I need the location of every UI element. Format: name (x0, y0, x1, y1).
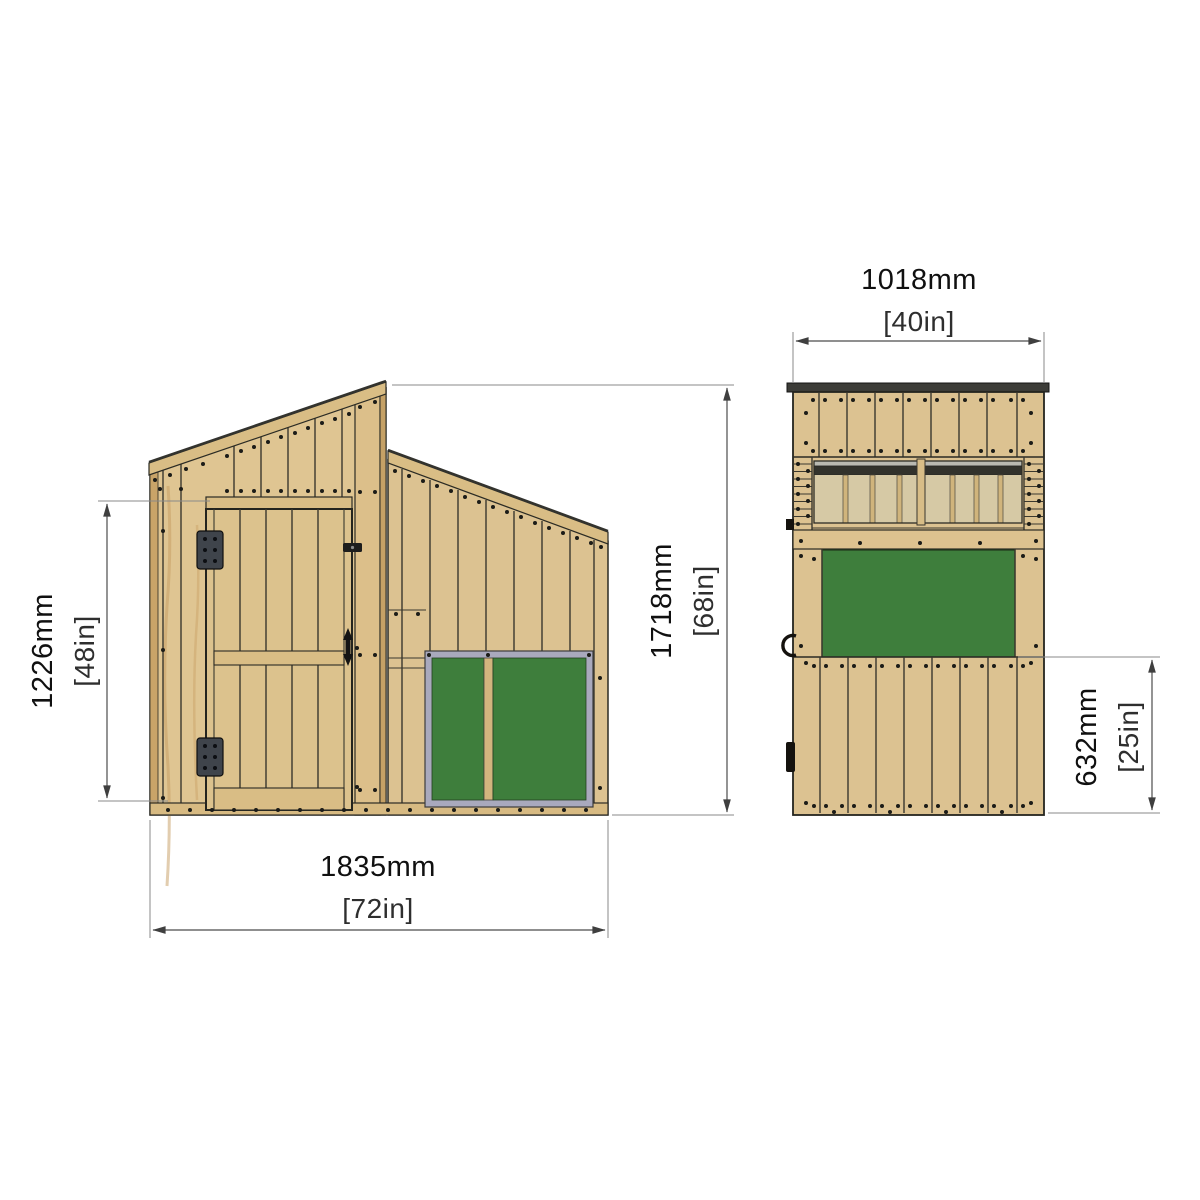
screw-dot (342, 808, 346, 812)
screw-dot (1009, 804, 1013, 808)
screw-dot (991, 449, 995, 453)
screw-dot (880, 664, 884, 668)
screw-dot (979, 449, 983, 453)
screw-dot (840, 804, 844, 808)
screw-dot (225, 454, 229, 458)
screw-dot (166, 808, 170, 812)
screw-dot (239, 489, 243, 493)
edge-hinge-bottom-icon (786, 742, 795, 772)
screw-dot (1009, 398, 1013, 402)
screw-dot (364, 808, 368, 812)
screw-dot (908, 804, 912, 808)
screw-dot (474, 808, 478, 812)
screw-dot (210, 808, 214, 812)
screw-dot (824, 804, 828, 808)
screw-dot (867, 398, 871, 402)
screw-dot (252, 445, 256, 449)
green-board-small (432, 658, 484, 800)
screw-dot (963, 449, 967, 453)
screw-dot (879, 449, 883, 453)
screw-dot (879, 398, 883, 402)
screw-dot (293, 489, 297, 493)
screw-dot (1000, 810, 1004, 814)
screw-dot (1034, 557, 1038, 561)
screw-dot (188, 808, 192, 812)
screw-dot (355, 785, 359, 789)
screw-dot (978, 541, 982, 545)
screw-dot (951, 449, 955, 453)
door-latch-icon (343, 543, 362, 552)
screw-dot (804, 801, 808, 805)
screw-dot (547, 526, 551, 530)
screw-dot (561, 531, 565, 535)
screw-dot (598, 676, 602, 680)
screw-dot (1021, 398, 1025, 402)
screw-dot (386, 808, 390, 812)
screw-dot (980, 664, 984, 668)
screw-dot (575, 536, 579, 540)
screw-dot (1029, 801, 1033, 805)
screw-dot (858, 541, 862, 545)
front-window (812, 459, 1024, 528)
screw-dot (589, 541, 593, 545)
screw-dot (812, 804, 816, 808)
screw-dot (851, 449, 855, 453)
front-mid-rail (793, 530, 1044, 549)
screw-dot (1021, 804, 1025, 808)
screw-dot (839, 398, 843, 402)
screw-dot (562, 808, 566, 812)
dimension-overall-depth: 1835mm [72in] (150, 820, 608, 938)
screw-dot (799, 554, 803, 558)
screw-dot (924, 804, 928, 808)
screw-dot (153, 478, 157, 482)
screw-dot (333, 489, 337, 493)
screw-dot (1027, 492, 1031, 496)
screw-dot (452, 808, 456, 812)
screw-dot (427, 653, 431, 657)
screw-dot (851, 398, 855, 402)
screw-dot (201, 462, 205, 466)
screw-dot (812, 557, 816, 561)
screw-dot (952, 804, 956, 808)
screw-dot (584, 808, 588, 812)
screw-dot (964, 664, 968, 668)
screw-dot (935, 449, 939, 453)
screw-dot (804, 441, 808, 445)
green-board-large (493, 658, 586, 800)
screw-dot (320, 421, 324, 425)
screw-dot (449, 489, 453, 493)
overall-height-in-label: [68in] (688, 565, 719, 637)
screw-dot (935, 398, 939, 402)
front-elevation-view (783, 383, 1049, 815)
side-corner-edge (380, 393, 386, 815)
screw-dot (1027, 477, 1031, 481)
screw-dot (980, 804, 984, 808)
screw-dot (1029, 441, 1033, 445)
screw-dot (796, 507, 800, 511)
green-board-mullion (484, 658, 493, 800)
screw-dot (1009, 664, 1013, 668)
side-elevation-view (149, 381, 608, 886)
screw-dot (279, 435, 283, 439)
screw-dot (435, 484, 439, 488)
screw-dot (867, 449, 871, 453)
door-bottom-rail (214, 788, 344, 810)
screw-dot (1034, 539, 1038, 543)
screw-dot (952, 664, 956, 668)
overall-depth-mm-label: 1835mm (320, 851, 436, 883)
screw-dot (896, 804, 900, 808)
screw-dot (907, 449, 911, 453)
screw-dot (505, 510, 509, 514)
screw-dot (907, 398, 911, 402)
screw-dot (358, 490, 362, 494)
door-hinge-top-icon (197, 531, 223, 569)
screw-dot (806, 469, 810, 473)
screw-dot (306, 489, 310, 493)
screw-dot (852, 664, 856, 668)
screw-dot (373, 653, 377, 657)
front-green-board (822, 550, 1015, 657)
screw-dot (587, 653, 591, 657)
screw-dot (832, 810, 836, 814)
screw-dot (936, 804, 940, 808)
screw-dot (373, 400, 377, 404)
screw-dot (1027, 507, 1031, 511)
screw-dot (799, 644, 803, 648)
screw-dot (496, 808, 500, 812)
screw-dot (347, 412, 351, 416)
screw-dot (320, 489, 324, 493)
screw-dot (991, 398, 995, 402)
screw-dot (298, 808, 302, 812)
screw-dot (806, 499, 810, 503)
screw-dot (824, 664, 828, 668)
screw-dot (416, 612, 420, 616)
screw-dot (806, 514, 810, 518)
screw-dot (804, 411, 808, 415)
screw-dot (279, 489, 283, 493)
screw-dot (852, 804, 856, 808)
screw-dot (239, 449, 243, 453)
screw-dot (804, 661, 808, 665)
screw-dot (880, 804, 884, 808)
screw-dot (1037, 499, 1041, 503)
screw-dot (1037, 469, 1041, 473)
screw-dot (168, 473, 172, 477)
screw-dot (868, 664, 872, 668)
screw-dot (486, 653, 490, 657)
screw-dot (964, 804, 968, 808)
front-window-assembly (793, 457, 1044, 530)
screw-dot (266, 489, 270, 493)
screw-dot (1027, 462, 1031, 466)
screw-dot (1021, 554, 1025, 558)
screw-dot (1009, 449, 1013, 453)
side-door (197, 497, 362, 810)
screw-dot (320, 808, 324, 812)
window-mullion (917, 459, 925, 525)
screw-dot (232, 808, 236, 812)
side-corner-trim (355, 395, 380, 815)
screw-dot (796, 522, 800, 526)
screw-dot (276, 808, 280, 812)
screw-dot (518, 808, 522, 812)
screw-dot (924, 664, 928, 668)
screw-dot (868, 804, 872, 808)
screw-dot (896, 664, 900, 668)
screw-dot (599, 545, 603, 549)
screw-dot (252, 489, 256, 493)
lower-cladding-in-label: [25in] (1113, 701, 1144, 773)
screw-dot (811, 449, 815, 453)
screw-dot (533, 521, 537, 525)
door-height-mm-label: 1226mm (27, 593, 59, 709)
screw-dot (254, 808, 258, 812)
screw-dot (923, 398, 927, 402)
screw-dot (519, 515, 523, 519)
screw-dot (373, 788, 377, 792)
screw-dot (293, 431, 297, 435)
screw-dot (421, 479, 425, 483)
dimension-overall-width: 1018mm [40in] (793, 264, 1044, 382)
screw-dot (358, 788, 362, 792)
screw-dot (796, 462, 800, 466)
screw-dot (477, 500, 481, 504)
screw-dot (408, 808, 412, 812)
screw-dot (963, 398, 967, 402)
side-left-edge-board (150, 466, 158, 815)
screw-dot (1021, 449, 1025, 453)
screw-dot (979, 398, 983, 402)
screw-dot (161, 648, 165, 652)
edge-hinge-top-icon (786, 519, 794, 530)
screw-dot (1029, 411, 1033, 415)
screw-dot (823, 398, 827, 402)
screw-dot (992, 664, 996, 668)
screw-dot (306, 426, 310, 430)
screw-dot (1029, 661, 1033, 665)
lower-cladding-mm-label: 632mm (1071, 687, 1103, 786)
door-mid-rail (214, 651, 344, 665)
screw-dot (1034, 644, 1038, 648)
screw-dot (158, 487, 162, 491)
screw-dot (823, 449, 827, 453)
screw-dot (1037, 514, 1041, 518)
overall-depth-in-label: [72in] (342, 893, 414, 924)
screw-dot (491, 505, 495, 509)
screw-dot (407, 474, 411, 478)
screw-dot (184, 467, 188, 471)
screw-dot (161, 529, 165, 533)
screw-dot (799, 539, 803, 543)
screw-dot (333, 417, 337, 421)
screw-dot (992, 804, 996, 808)
screw-dot (598, 786, 602, 790)
screw-dot (796, 477, 800, 481)
screw-dot (430, 808, 434, 812)
screw-dot (179, 487, 183, 491)
screw-dot (373, 490, 377, 494)
screw-dot (908, 664, 912, 668)
screw-dot (840, 664, 844, 668)
screw-dot (888, 810, 892, 814)
screw-dot (355, 646, 359, 650)
overall-width-in-label: [40in] (883, 306, 955, 337)
screw-dot (918, 541, 922, 545)
side-green-boards (425, 651, 593, 807)
screw-dot (1037, 484, 1041, 488)
screw-dot (895, 449, 899, 453)
screw-dot (839, 449, 843, 453)
screw-dot (463, 495, 467, 499)
screw-dot (812, 664, 816, 668)
screw-dot (393, 469, 397, 473)
drawing-canvas: 1226mm [48in] 1718mm [68in] 1835mm [72in… (0, 0, 1200, 1200)
screw-dot (895, 398, 899, 402)
screw-dot (358, 653, 362, 657)
screw-dot (161, 796, 165, 800)
door-hinge-bottom-icon (197, 738, 223, 776)
screw-dot (540, 808, 544, 812)
screw-dot (811, 398, 815, 402)
screw-dot (806, 484, 810, 488)
screw-dot (225, 489, 229, 493)
screw-dot (358, 405, 362, 409)
screw-dot (1021, 664, 1025, 668)
overall-width-mm-label: 1018mm (861, 264, 977, 296)
screw-dot (936, 664, 940, 668)
shed-technical-drawing: 1226mm [48in] 1718mm [68in] 1835mm [72in… (0, 0, 1200, 1200)
screw-dot (951, 398, 955, 402)
overall-height-mm-label: 1718mm (646, 543, 678, 659)
screw-dot (1027, 522, 1031, 526)
door-height-in-label: [48in] (69, 615, 100, 687)
screw-dot (944, 810, 948, 814)
screw-dot (923, 449, 927, 453)
screw-dot (394, 612, 398, 616)
screw-dot (347, 489, 351, 493)
screw-dot (266, 440, 270, 444)
front-roof-strip (787, 383, 1049, 392)
door-header (206, 497, 352, 509)
screw-dot (796, 492, 800, 496)
